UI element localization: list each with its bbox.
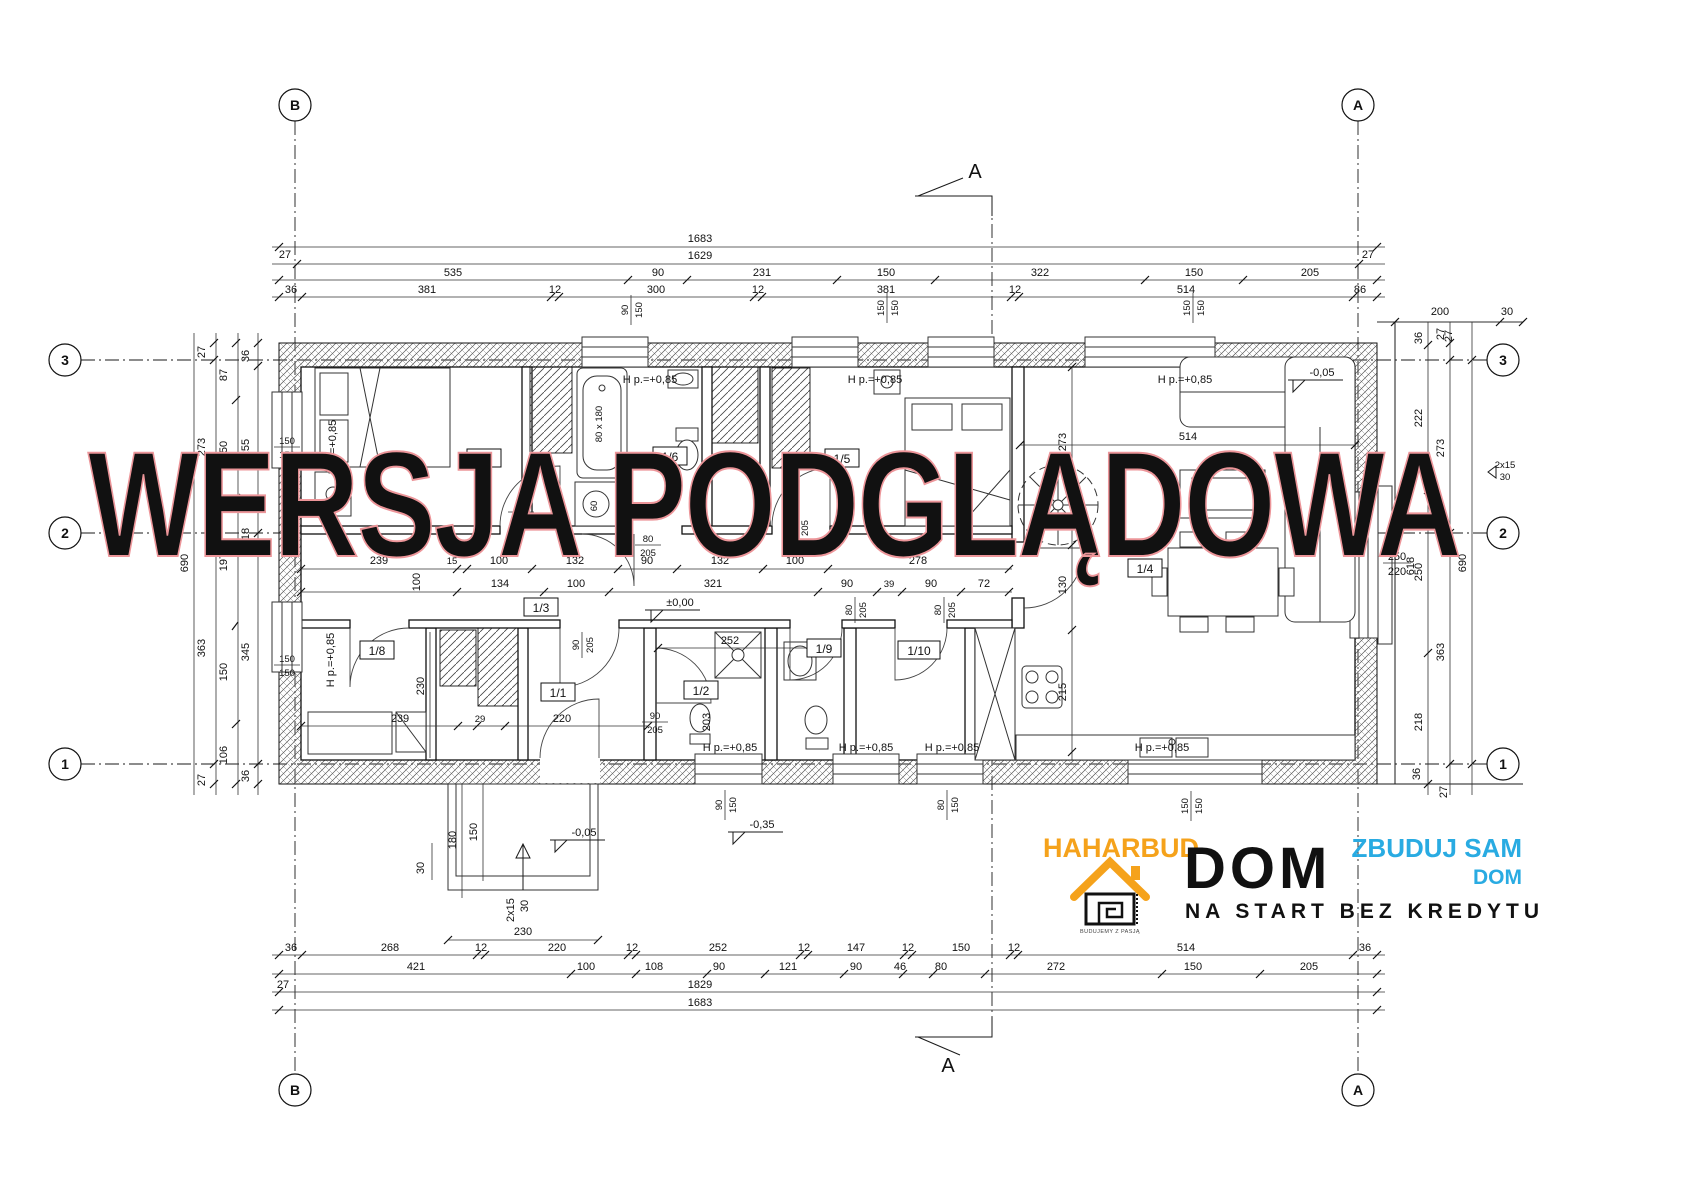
- dim: 230: [514, 926, 532, 938]
- room-label-1-9: 1/9: [807, 639, 841, 657]
- svg-text:-0,35: -0,35: [749, 819, 774, 831]
- dim: 150: [952, 942, 970, 954]
- dim-porch-steps: 2x15: [505, 898, 517, 922]
- logo: HAHARBUD BUDUJEMY Z PASJĄ DOM ZBUDUJ SAM…: [1043, 833, 1544, 935]
- section-mark-label-top: A: [968, 161, 982, 183]
- toilet-room9: [805, 706, 828, 749]
- stove: [1022, 666, 1062, 708]
- dim: 231: [753, 267, 771, 279]
- level-marker-minus005: -0,05: [550, 827, 605, 852]
- svg-text:205: 205: [585, 637, 596, 653]
- svg-text:80: 80: [936, 800, 947, 811]
- sill-height-label: H p.=+0,85: [1135, 742, 1189, 754]
- chimney-hatch: [440, 630, 476, 686]
- dim: 252: [721, 635, 739, 647]
- dim: 36: [1359, 942, 1371, 954]
- dim: 150: [1185, 267, 1203, 279]
- axis-label: B: [290, 97, 300, 113]
- dim: 27: [1438, 786, 1450, 798]
- dim: 1629: [688, 250, 712, 262]
- svg-text:90: 90: [714, 800, 725, 811]
- svg-text:80: 80: [933, 605, 944, 616]
- dim: 27: [277, 979, 289, 991]
- dim: 205: [1300, 961, 1318, 973]
- axis-label: 3: [61, 352, 69, 368]
- svg-text:150: 150: [634, 302, 645, 318]
- sill-height-label: H p.=+0,85: [703, 742, 757, 754]
- window-size: 90150: [714, 790, 739, 820]
- wardrobe-x: [975, 628, 1015, 760]
- sill-height-label: H p.=+0,85: [1158, 374, 1212, 386]
- dim: 30: [415, 862, 427, 874]
- svg-text:150: 150: [1196, 300, 1207, 316]
- dim: 363: [1435, 643, 1447, 661]
- dim: 30: [1501, 306, 1513, 318]
- dim: 1683: [688, 997, 712, 1009]
- svg-text:150: 150: [890, 300, 901, 316]
- dim: 90: [652, 267, 664, 279]
- dim: 108: [645, 961, 663, 973]
- chimney-hatch: [478, 628, 518, 706]
- axis-label: 3: [1499, 352, 1507, 368]
- sill-height-label: H p.=+0,85: [839, 742, 893, 754]
- svg-text:150: 150: [950, 797, 961, 813]
- logo-zbuduj-sam-text: ZBUDUJ SAM: [1352, 833, 1522, 863]
- floor-plan-sheet: B A B A 3 2 1 3 2 1 A A: [0, 0, 1700, 1200]
- logo-tagline-text: NA START BEZ KREDYTU: [1185, 900, 1544, 923]
- sill-height-label: H p.=+0,85: [925, 742, 979, 754]
- axis-label: 2: [1499, 525, 1507, 541]
- dim: 12: [752, 284, 764, 296]
- logo-brand-text: HAHARBUD: [1043, 833, 1199, 863]
- dim: 27: [196, 346, 208, 358]
- svg-text:90: 90: [650, 711, 661, 722]
- svg-text:205: 205: [647, 725, 663, 736]
- dim: 1829: [688, 979, 712, 991]
- section-mark-label-bottom: A: [941, 1055, 955, 1077]
- window-size: 150150: [1180, 791, 1205, 821]
- logo-zbuduj-dom-text: DOM: [1473, 866, 1522, 889]
- dim: 12: [1008, 942, 1020, 954]
- dim: 100: [577, 961, 595, 973]
- dim: 272: [1047, 961, 1065, 973]
- dim: 29: [475, 714, 486, 725]
- window-size: 150150: [876, 293, 901, 323]
- dim: 150: [877, 267, 895, 279]
- svg-text:±0,00: ±0,00: [666, 597, 693, 609]
- dim: 381: [418, 284, 436, 296]
- dim: 514: [1177, 284, 1195, 296]
- svg-text:1/2: 1/2: [693, 684, 710, 698]
- svg-text:90: 90: [620, 305, 631, 316]
- window-size: 80150: [936, 790, 961, 820]
- dim-porch-steps: 30: [519, 900, 531, 912]
- dim-total-width: 1683: [688, 233, 712, 245]
- svg-text:150: 150: [1194, 798, 1205, 814]
- room-label-1-2: 1/2: [684, 681, 718, 699]
- dim: 80: [935, 961, 947, 973]
- dim-terrace-steps: 30: [1500, 472, 1511, 483]
- dim: 12: [1009, 284, 1021, 296]
- dim: 230: [415, 677, 427, 695]
- axis-label: 2: [61, 525, 69, 541]
- svg-text:150: 150: [279, 654, 295, 665]
- dim: 150: [218, 663, 230, 681]
- dim: 12: [475, 942, 487, 954]
- window-size: 90150: [620, 295, 645, 325]
- level-marker-minus035: -0,35: [728, 819, 783, 844]
- dim: 252: [709, 942, 727, 954]
- dim: 203: [701, 713, 713, 731]
- svg-text:150: 150: [1180, 798, 1191, 814]
- entrance-opening: [540, 756, 600, 783]
- room-label-1-8: 1/8: [360, 641, 394, 659]
- svg-text:1/10: 1/10: [907, 644, 931, 658]
- axis-label: 1: [61, 756, 69, 772]
- svg-text:1/1: 1/1: [550, 686, 567, 700]
- svg-text:205: 205: [947, 602, 958, 618]
- dim: 90: [713, 961, 725, 973]
- dim: 514: [1177, 942, 1195, 954]
- axis-label: A: [1353, 1082, 1363, 1098]
- axis-label: A: [1353, 97, 1363, 113]
- axis-label: 1: [1499, 756, 1507, 772]
- dim: 180: [447, 831, 459, 849]
- dim: 205: [1301, 267, 1319, 279]
- dim: 87: [218, 369, 230, 381]
- dim: 12: [798, 942, 810, 954]
- dim: 345: [240, 643, 252, 661]
- dim: 239: [391, 713, 409, 725]
- dim: 27: [1362, 249, 1374, 261]
- axis-label: B: [290, 1082, 300, 1098]
- floor-plan-drawing: B A B A 3 2 1 3 2 1 A A: [0, 0, 1700, 1200]
- svg-text:150: 150: [1182, 300, 1193, 316]
- dim: 86: [1354, 284, 1366, 296]
- window-size: 150150: [1182, 293, 1207, 323]
- sill-height-label: H p.=+0,85: [325, 633, 337, 687]
- dim: 12: [902, 942, 914, 954]
- dim: 121: [779, 961, 797, 973]
- logo-house-caption: BUDUJEMY Z PASJĄ: [1080, 929, 1140, 935]
- dim: 535: [444, 267, 462, 279]
- dim: 147: [847, 942, 865, 954]
- dim: 215: [1057, 683, 1069, 701]
- dim: 106: [218, 746, 230, 764]
- dim: 200: [1431, 306, 1449, 318]
- dim: 12: [549, 284, 561, 296]
- dim-terrace-steps: 2x15: [1495, 460, 1516, 471]
- svg-text:1/3: 1/3: [533, 601, 550, 615]
- dim: 27: [279, 249, 291, 261]
- svg-text:150: 150: [279, 668, 295, 679]
- sill-height-label: H p.=+0,85: [848, 374, 902, 386]
- room-label-1-10: 1/10: [898, 641, 940, 659]
- dim: 421: [407, 961, 425, 973]
- dim: 36: [240, 770, 252, 782]
- dim: 300: [647, 284, 665, 296]
- dim: 220: [548, 942, 566, 954]
- svg-text:90: 90: [571, 640, 582, 651]
- svg-text:80: 80: [844, 605, 855, 616]
- dim: 36: [1413, 332, 1425, 344]
- dim: 218: [1413, 713, 1425, 731]
- logo-dom-text: DOM: [1184, 836, 1331, 901]
- dim: 36: [1411, 768, 1423, 780]
- svg-text:150: 150: [728, 797, 739, 813]
- room-label-1-1: 1/1: [541, 683, 575, 701]
- dim: 36: [240, 350, 252, 362]
- dim: 36: [285, 942, 297, 954]
- room-label-1-3: 1/3: [524, 598, 558, 616]
- dim: 363: [196, 639, 208, 657]
- svg-text:-0,05: -0,05: [571, 827, 596, 839]
- dim: 150: [468, 823, 480, 841]
- svg-text:1/8: 1/8: [369, 644, 386, 658]
- svg-text:-0,05: -0,05: [1309, 367, 1334, 379]
- dim: 36: [285, 284, 297, 296]
- dim: 46: [894, 961, 906, 973]
- dim: 27: [196, 774, 208, 786]
- dim: 90: [850, 961, 862, 973]
- dim: 381: [877, 284, 895, 296]
- dim: 322: [1031, 267, 1049, 279]
- logo-house-icon: BUDUJEMY Z PASJĄ: [1074, 862, 1146, 935]
- sill-height-label: H p.=+0,85: [623, 374, 677, 386]
- svg-text:1/9: 1/9: [816, 642, 833, 656]
- dim: 220: [553, 713, 571, 725]
- svg-text:205: 205: [858, 602, 869, 618]
- dim: 268: [381, 942, 399, 954]
- svg-text:150: 150: [876, 300, 887, 316]
- dim: 150: [1184, 961, 1202, 973]
- dim: 27: [1435, 328, 1447, 340]
- dim: 12: [626, 942, 638, 954]
- watermark-text: WERSJA PODGLĄDOWA: [88, 420, 1460, 588]
